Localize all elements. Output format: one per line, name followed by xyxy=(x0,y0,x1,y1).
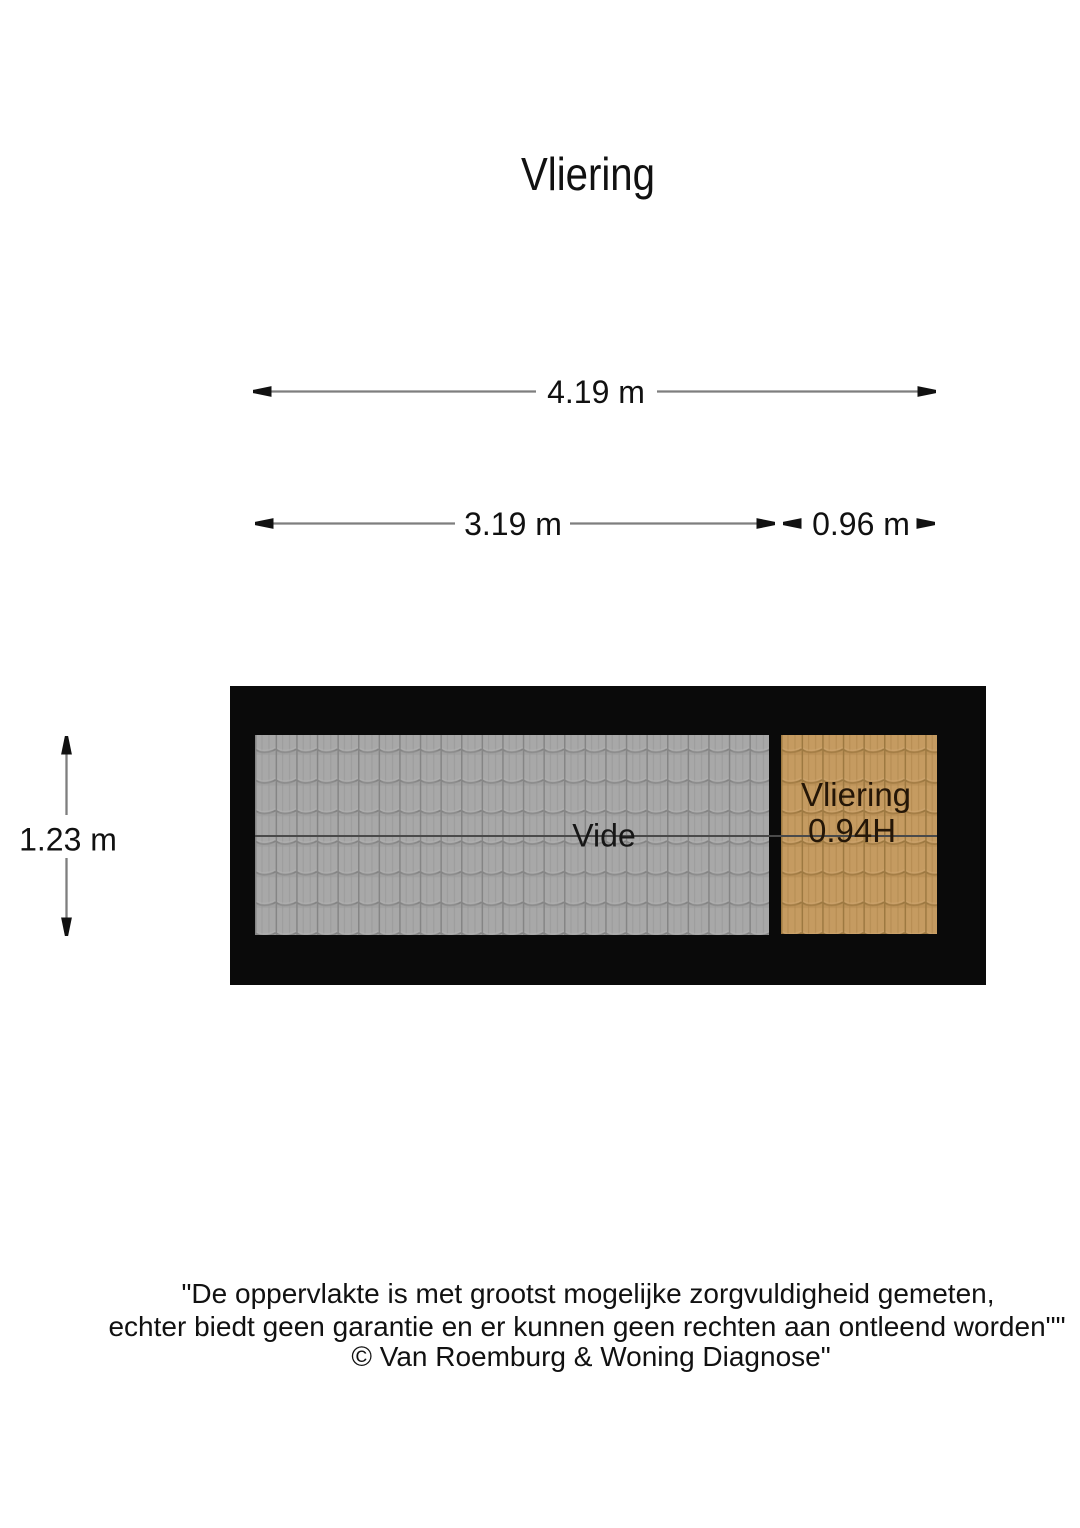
svg-text:"De oppervlakte is met grootst: "De oppervlakte is met grootst mogelijke… xyxy=(181,1278,994,1309)
svg-text:Vide: Vide xyxy=(572,818,635,854)
svg-text:0.96 m: 0.96 m xyxy=(812,506,910,542)
svg-text:0.94H: 0.94H xyxy=(808,812,896,849)
svg-text:1.23 m: 1.23 m xyxy=(19,822,117,858)
svg-text:3.19 m: 3.19 m xyxy=(464,506,562,542)
svg-text:Vliering: Vliering xyxy=(521,148,655,200)
svg-text:echter biedt geen garantie en: echter biedt geen garantie en er kunnen … xyxy=(108,1311,1065,1342)
svg-text:Vliering: Vliering xyxy=(801,776,911,813)
svg-text:© Van Roemburg & Woning Diagno: © Van Roemburg & Woning Diagnose" xyxy=(351,1341,830,1372)
svg-text:4.19 m: 4.19 m xyxy=(547,374,645,410)
